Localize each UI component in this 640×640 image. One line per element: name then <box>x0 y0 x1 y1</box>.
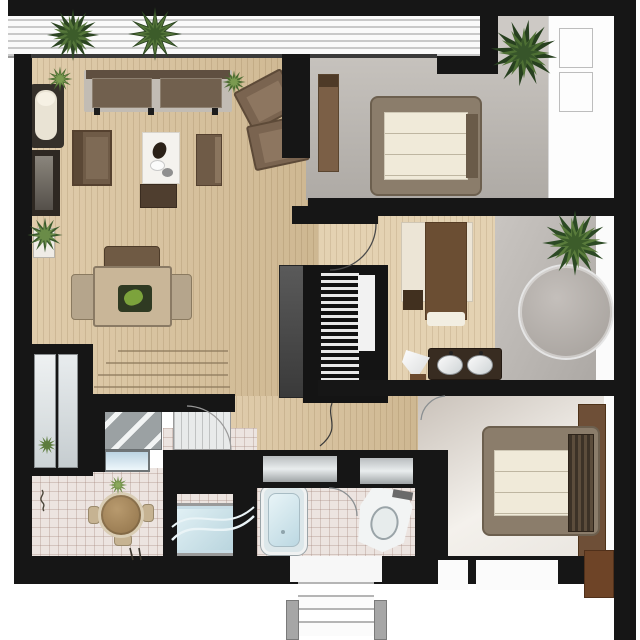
tv-cabinet <box>30 150 60 216</box>
chaise-pillow <box>37 92 55 106</box>
balcony-plant-icon <box>38 4 108 66</box>
coffee-table <box>142 132 180 184</box>
wall-laundry-bath-divider <box>233 452 257 560</box>
stair-step-line <box>118 350 228 352</box>
wall-right <box>614 0 636 640</box>
entry-post <box>374 600 387 640</box>
middleroom-blanket <box>425 222 467 320</box>
armchair-cushion <box>86 137 108 179</box>
tv-cabinet-front <box>35 156 53 210</box>
wardrobe-door-panel <box>559 28 593 68</box>
bottom-brown-block <box>584 550 614 598</box>
small-sprig-icon <box>36 432 58 458</box>
entry-step <box>298 595 374 608</box>
sofa-cushion-left <box>92 78 152 108</box>
bedroom3-headboard <box>568 434 594 532</box>
dresser-top <box>319 75 338 87</box>
armchair-back <box>74 132 83 184</box>
sofa-leg <box>212 108 218 115</box>
bench-edge <box>215 137 221 183</box>
bathtub <box>261 485 307 555</box>
entry-step <box>298 608 374 621</box>
bedroom1-dresser <box>318 74 339 172</box>
bedroom1-mattress <box>384 112 468 180</box>
sofa-cushion-right <box>160 78 222 108</box>
wall-bath-bed3-divider <box>415 450 448 560</box>
wall-stub-middle <box>292 206 378 224</box>
bedroom1-bed-frame <box>370 96 482 196</box>
bedroom3-bed-frame <box>482 426 600 536</box>
sofa-leg <box>94 108 100 115</box>
entry-step <box>298 582 374 595</box>
stair-step-line <box>98 374 228 376</box>
toilet <box>353 484 415 556</box>
wall-stairs-bottom <box>85 394 235 412</box>
side-bench <box>196 134 222 186</box>
entry-step <box>298 621 374 636</box>
blue-window-bar <box>104 450 150 472</box>
entry-landing <box>290 556 382 582</box>
bedroom3-mattress <box>494 450 574 516</box>
faucet <box>449 351 453 355</box>
faucet <box>479 351 483 355</box>
vanity-sink <box>467 355 493 375</box>
vanity-sink <box>437 355 463 375</box>
frosted-glass-panel <box>58 354 78 468</box>
middleroom-pillow <box>427 312 465 326</box>
wardrobe-door-panel <box>559 72 593 112</box>
wall-left <box>14 54 32 584</box>
hall-connector-floor <box>230 396 420 454</box>
sofa-leg <box>148 108 154 115</box>
stair-step-line <box>94 386 230 388</box>
small-sprig-icon <box>106 474 130 496</box>
wall-middleroom-bottom <box>318 380 614 396</box>
stair-step-line <box>106 362 228 364</box>
floor-plan-canvas <box>0 0 640 640</box>
vanity-counter <box>428 348 502 380</box>
wall-glass-stub <box>93 394 105 472</box>
media-unit-door <box>358 275 375 351</box>
armchair <box>72 130 112 186</box>
palm-plant-icon <box>486 12 562 94</box>
sofa <box>84 70 232 112</box>
bathtub-drain <box>281 530 285 534</box>
media-unit-slatted-shelf <box>321 273 359 389</box>
dining-table <box>93 266 172 327</box>
bottom-wall-window <box>476 560 558 590</box>
ottoman <box>140 184 177 208</box>
gray-window-bar <box>263 456 337 482</box>
bathtub-water <box>268 493 300 547</box>
round-table <box>98 492 144 538</box>
entry-post <box>286 600 299 640</box>
gray-window-bar <box>360 458 413 484</box>
decor-pebble-gray <box>162 168 173 177</box>
round-table-group <box>96 490 148 542</box>
grass-tuft-icon <box>218 68 250 96</box>
bottom-wall-window <box>438 560 468 590</box>
grass-tuft-icon <box>44 64 76 94</box>
tv-panel <box>279 265 305 398</box>
balcony-plant-icon <box>118 2 192 66</box>
wall-living-bed1-divider <box>282 54 310 158</box>
decor-pebble-dark <box>150 140 169 161</box>
indoor-palm-icon <box>536 204 614 282</box>
potted-plant-leaves-icon <box>24 214 66 256</box>
middleroom-side-box <box>403 290 423 310</box>
bedroom1-bed-side <box>466 114 478 178</box>
